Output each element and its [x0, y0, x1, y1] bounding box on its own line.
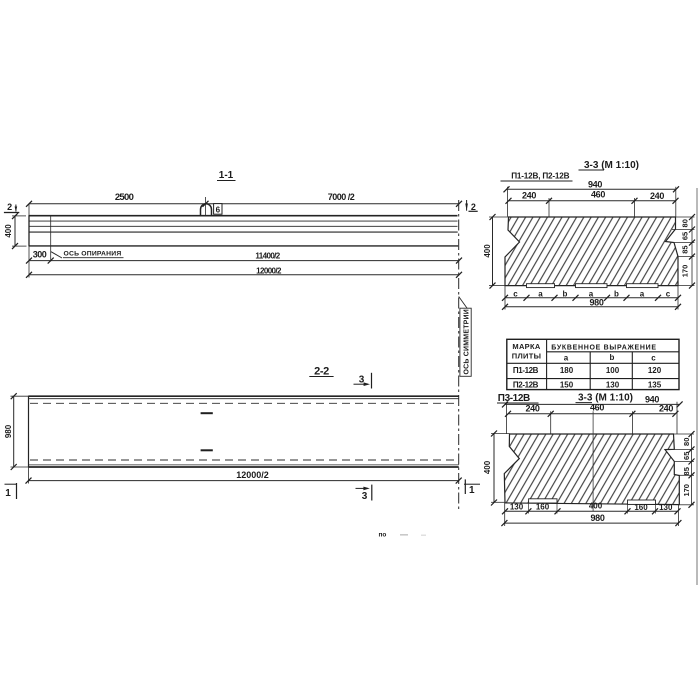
- svg-text:130: 130: [606, 380, 620, 389]
- svg-text:2: 2: [7, 202, 12, 212]
- svg-text:3: 3: [359, 374, 365, 385]
- svg-text:80: 80: [681, 219, 690, 227]
- svg-text:160: 160: [634, 503, 648, 512]
- svg-text:МАРКА: МАРКА: [512, 342, 540, 351]
- svg-text:b: b: [610, 353, 615, 362]
- svg-text:b: b: [563, 290, 568, 299]
- svg-text:c: c: [666, 290, 671, 299]
- svg-text:460: 460: [591, 190, 605, 200]
- svg-text:П1-12В, П2-12В: П1-12В, П2-12В: [511, 172, 569, 181]
- svg-text:2: 2: [471, 202, 476, 212]
- svg-text:400: 400: [589, 502, 603, 511]
- svg-text:85: 85: [682, 467, 691, 475]
- svg-text:130: 130: [510, 503, 524, 512]
- svg-text:300: 300: [33, 250, 47, 260]
- svg-text:120: 120: [648, 366, 662, 375]
- svg-text:65: 65: [681, 232, 690, 240]
- svg-text:c: c: [651, 354, 656, 363]
- svg-text:П2-12В: П2-12В: [513, 380, 539, 389]
- svg-text:940: 940: [588, 180, 602, 190]
- svg-text:6: 6: [216, 205, 221, 214]
- svg-text:980: 980: [589, 298, 603, 308]
- svg-text:по: по: [379, 532, 387, 539]
- svg-text:460: 460: [590, 403, 604, 413]
- svg-text:БУКВЕННОЕ ВЫРАЖЕНИЕ: БУКВЕННОЕ ВЫРАЖЕНИЕ: [551, 344, 656, 351]
- svg-text:180: 180: [560, 366, 574, 375]
- svg-text:7000 /2: 7000 /2: [328, 192, 355, 202]
- svg-text:3-3 (М 1:10): 3-3 (М 1:10): [578, 392, 633, 403]
- svg-text:130: 130: [659, 503, 673, 512]
- svg-text:c: c: [513, 290, 518, 299]
- svg-text:240: 240: [659, 404, 673, 414]
- svg-text:a: a: [538, 289, 543, 298]
- svg-text:100: 100: [606, 366, 620, 375]
- svg-text:11400/2: 11400/2: [255, 251, 280, 260]
- svg-text:2-2: 2-2: [314, 366, 329, 378]
- svg-text:2500: 2500: [115, 192, 134, 203]
- svg-text:240: 240: [522, 191, 536, 201]
- svg-text:П1-12В: П1-12В: [513, 366, 539, 375]
- svg-text:a: a: [564, 353, 569, 362]
- svg-text:1-1: 1-1: [219, 170, 234, 181]
- svg-text:П3-12В: П3-12В: [498, 393, 530, 404]
- svg-text:12000/2: 12000/2: [236, 470, 269, 480]
- svg-text:150: 150: [560, 380, 574, 389]
- svg-text:80: 80: [682, 438, 691, 446]
- svg-text:170: 170: [681, 265, 690, 278]
- svg-text:12000/2: 12000/2: [256, 266, 282, 275]
- svg-text:85: 85: [681, 245, 690, 253]
- svg-text:240: 240: [650, 191, 664, 201]
- svg-text:980: 980: [4, 424, 13, 438]
- svg-text:1: 1: [5, 488, 11, 499]
- svg-text:980: 980: [590, 513, 604, 523]
- svg-text:b: b: [614, 290, 619, 299]
- svg-text:135: 135: [648, 380, 662, 389]
- svg-text:65: 65: [682, 452, 691, 460]
- svg-text:400: 400: [483, 460, 492, 474]
- svg-text:940: 940: [645, 395, 659, 405]
- svg-text:ОСЬ ОПИРАНИЯ: ОСЬ ОПИРАНИЯ: [64, 250, 122, 257]
- svg-text:170: 170: [682, 484, 691, 497]
- svg-text:400: 400: [4, 224, 13, 238]
- svg-text:160: 160: [536, 503, 550, 512]
- svg-text:3: 3: [362, 491, 368, 502]
- svg-text:ОСЬ СИММЕТРИИ: ОСЬ СИММЕТРИИ: [464, 309, 471, 375]
- svg-text:240: 240: [525, 404, 539, 414]
- svg-text:a: a: [640, 289, 645, 298]
- svg-text:3-3 (М 1:10): 3-3 (М 1:10): [584, 160, 639, 171]
- svg-text:400: 400: [483, 244, 492, 258]
- svg-text:ПЛИТЫ: ПЛИТЫ: [512, 352, 541, 361]
- svg-text:1: 1: [469, 485, 475, 496]
